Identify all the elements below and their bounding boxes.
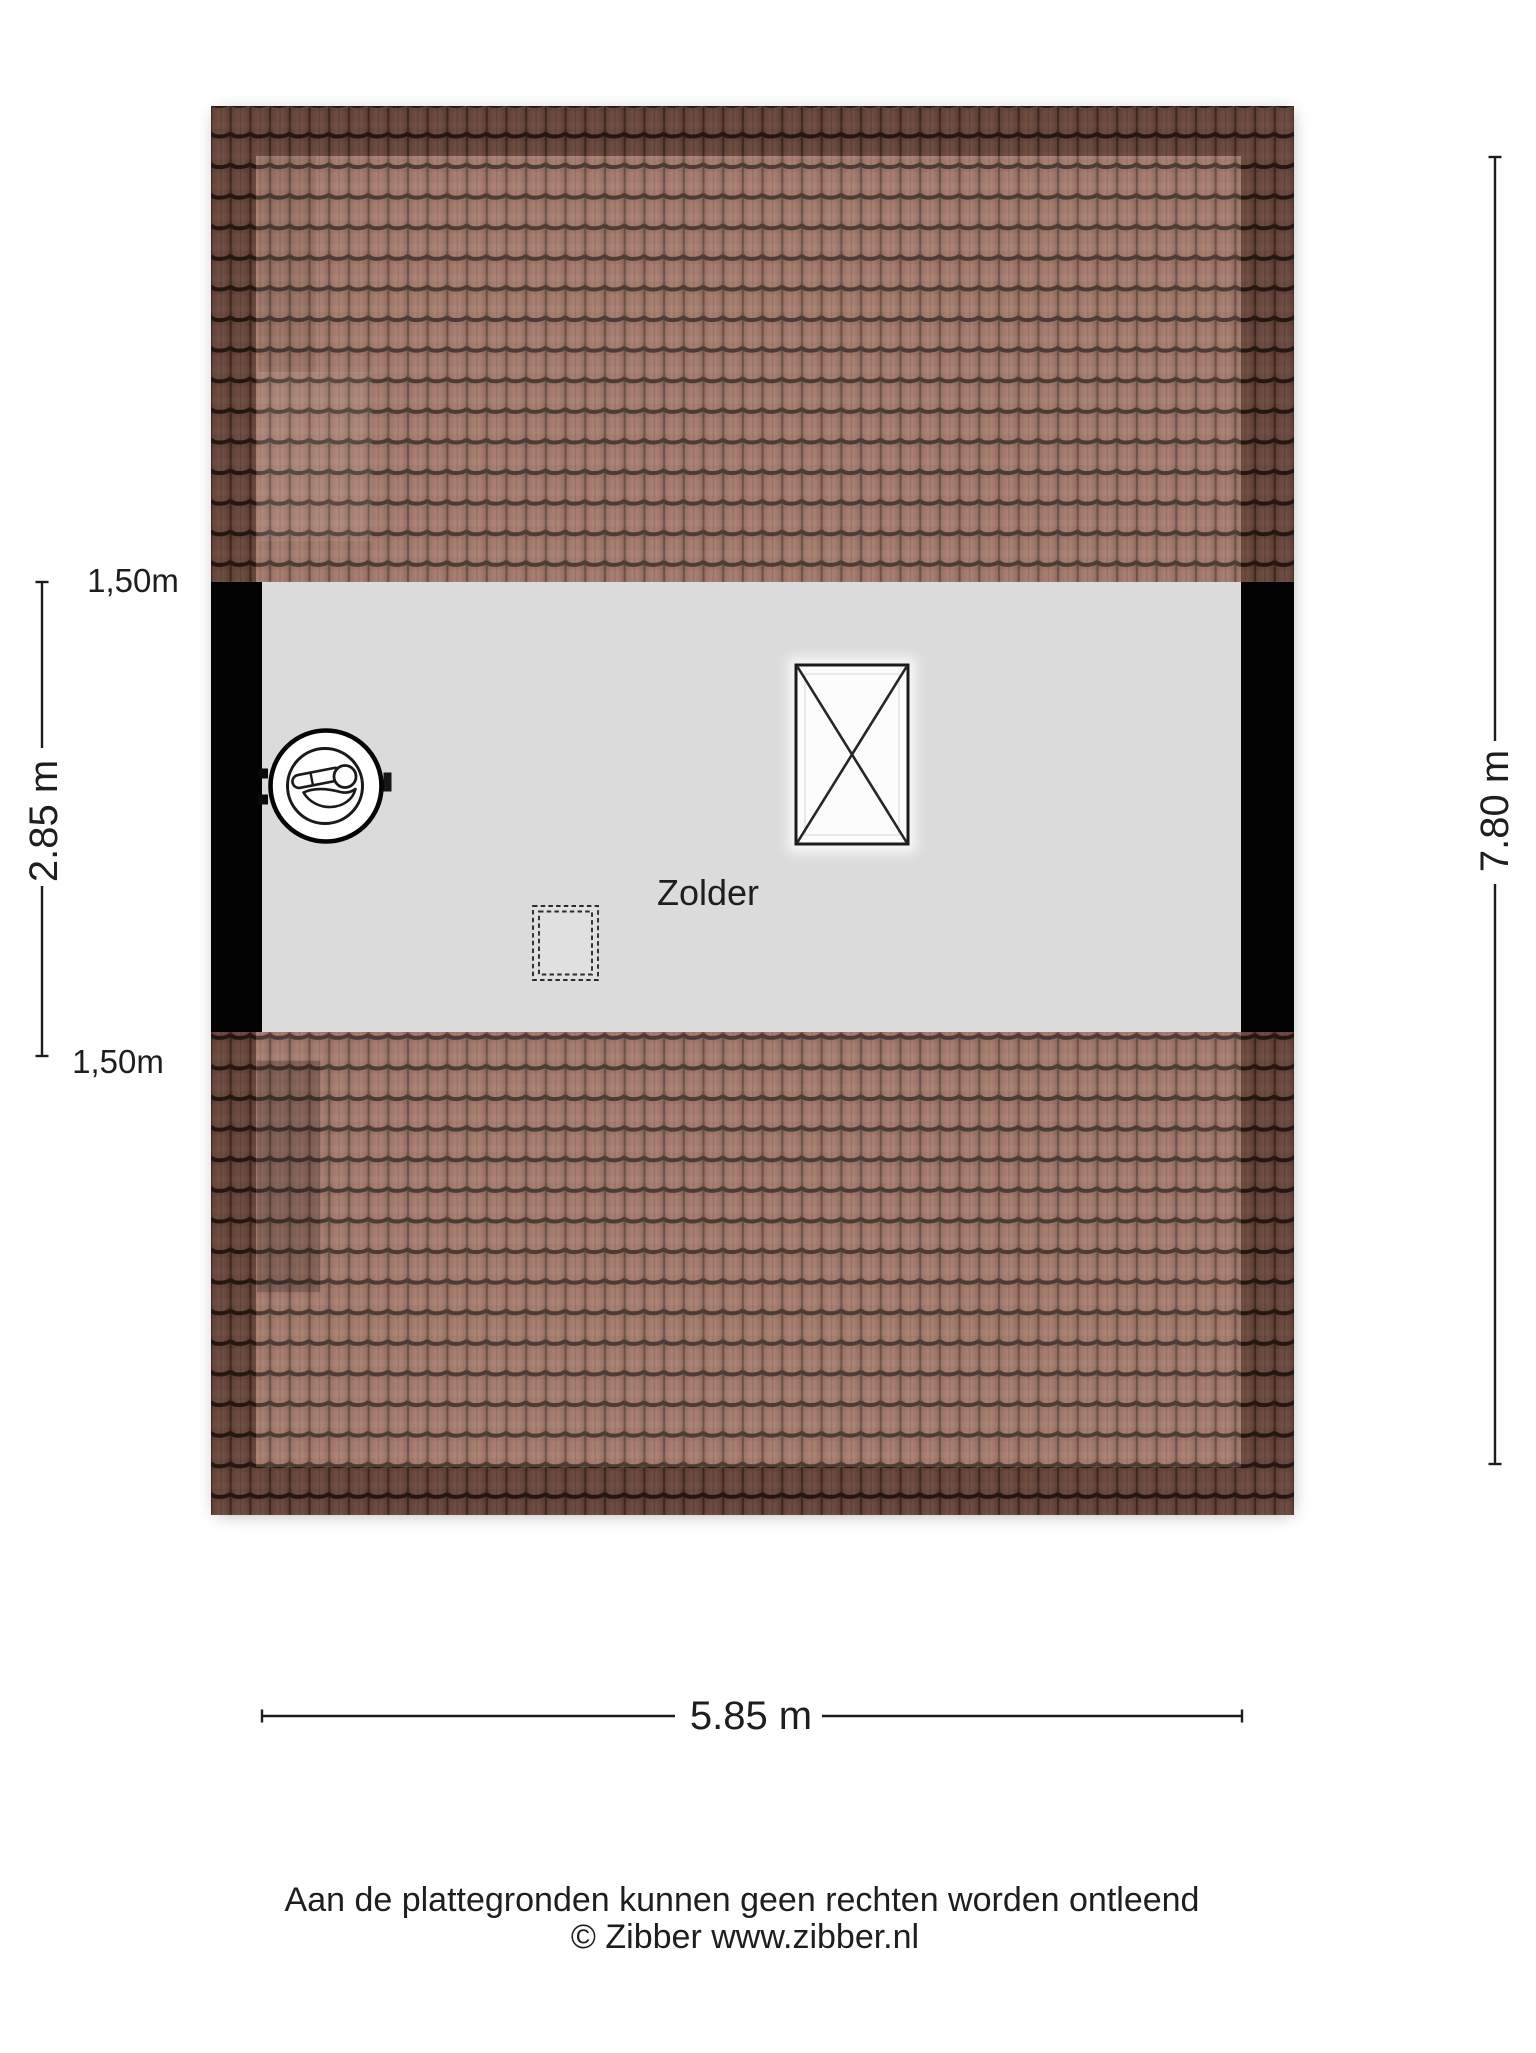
svg-text:2.85 m: 2.85 m [22,760,66,882]
svg-text:5.85 m: 5.85 m [690,1694,812,1738]
svg-text:1,50m: 1,50m [72,1043,164,1080]
svg-text:1,50m: 1,50m [87,562,179,599]
svg-text:Aan de plattegronden kunnen ge: Aan de plattegronden kunnen geen rechten… [285,1881,1200,1919]
svg-text:Zolder: Zolder [657,872,759,913]
svg-text:7.80 m: 7.80 m [1473,750,1517,872]
svg-text:© Zibber www.zibber.nl: © Zibber www.zibber.nl [571,1918,919,1956]
